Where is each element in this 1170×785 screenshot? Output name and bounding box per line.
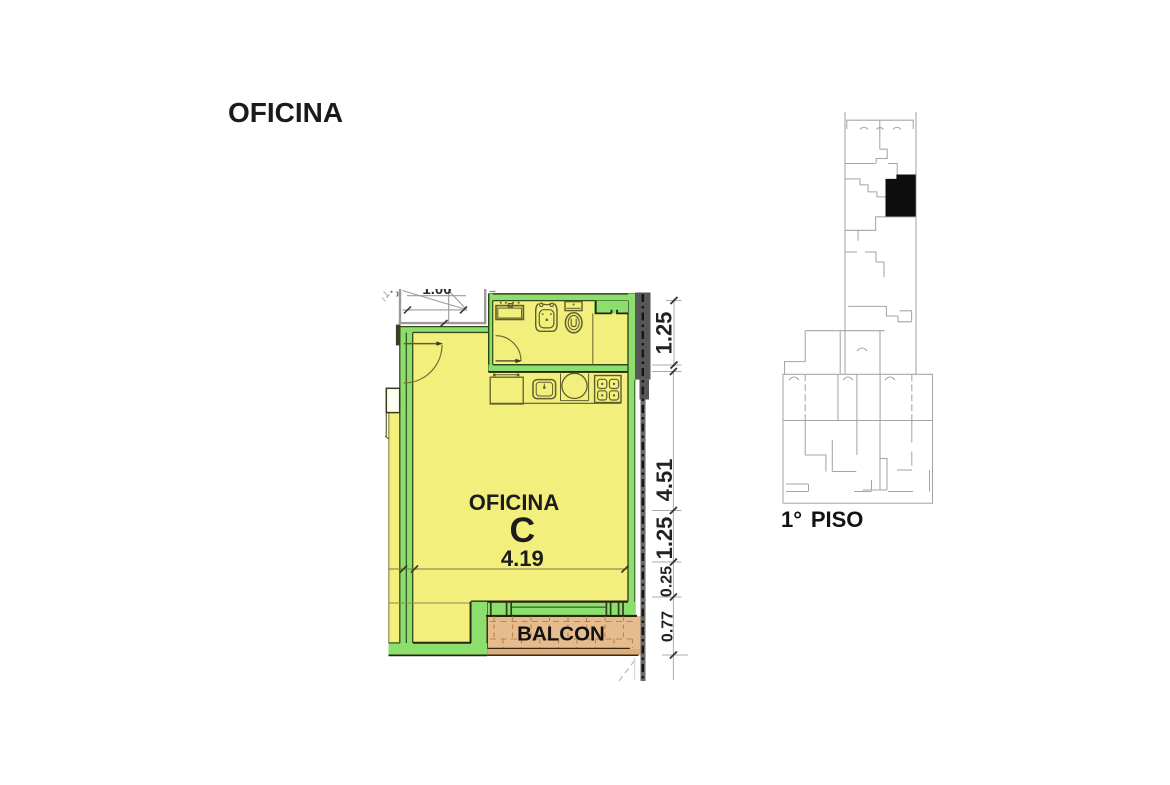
svg-text:OFICINA: OFICINA [228,97,343,128]
svg-text:4.19: 4.19 [501,546,544,571]
svg-text:1.25: 1.25 [652,312,677,355]
svg-text:1.25: 1.25 [652,517,677,560]
svg-text:C: C [509,510,535,550]
svg-text:BALCON: BALCON [517,622,605,645]
svg-text:0.25: 0.25 [659,566,676,597]
svg-text:0.77: 0.77 [660,611,677,642]
svg-text:4.51: 4.51 [652,459,677,502]
svg-text:1.00: 1.00 [422,281,451,298]
svg-text:1° PISO: 1° PISO [781,507,863,532]
